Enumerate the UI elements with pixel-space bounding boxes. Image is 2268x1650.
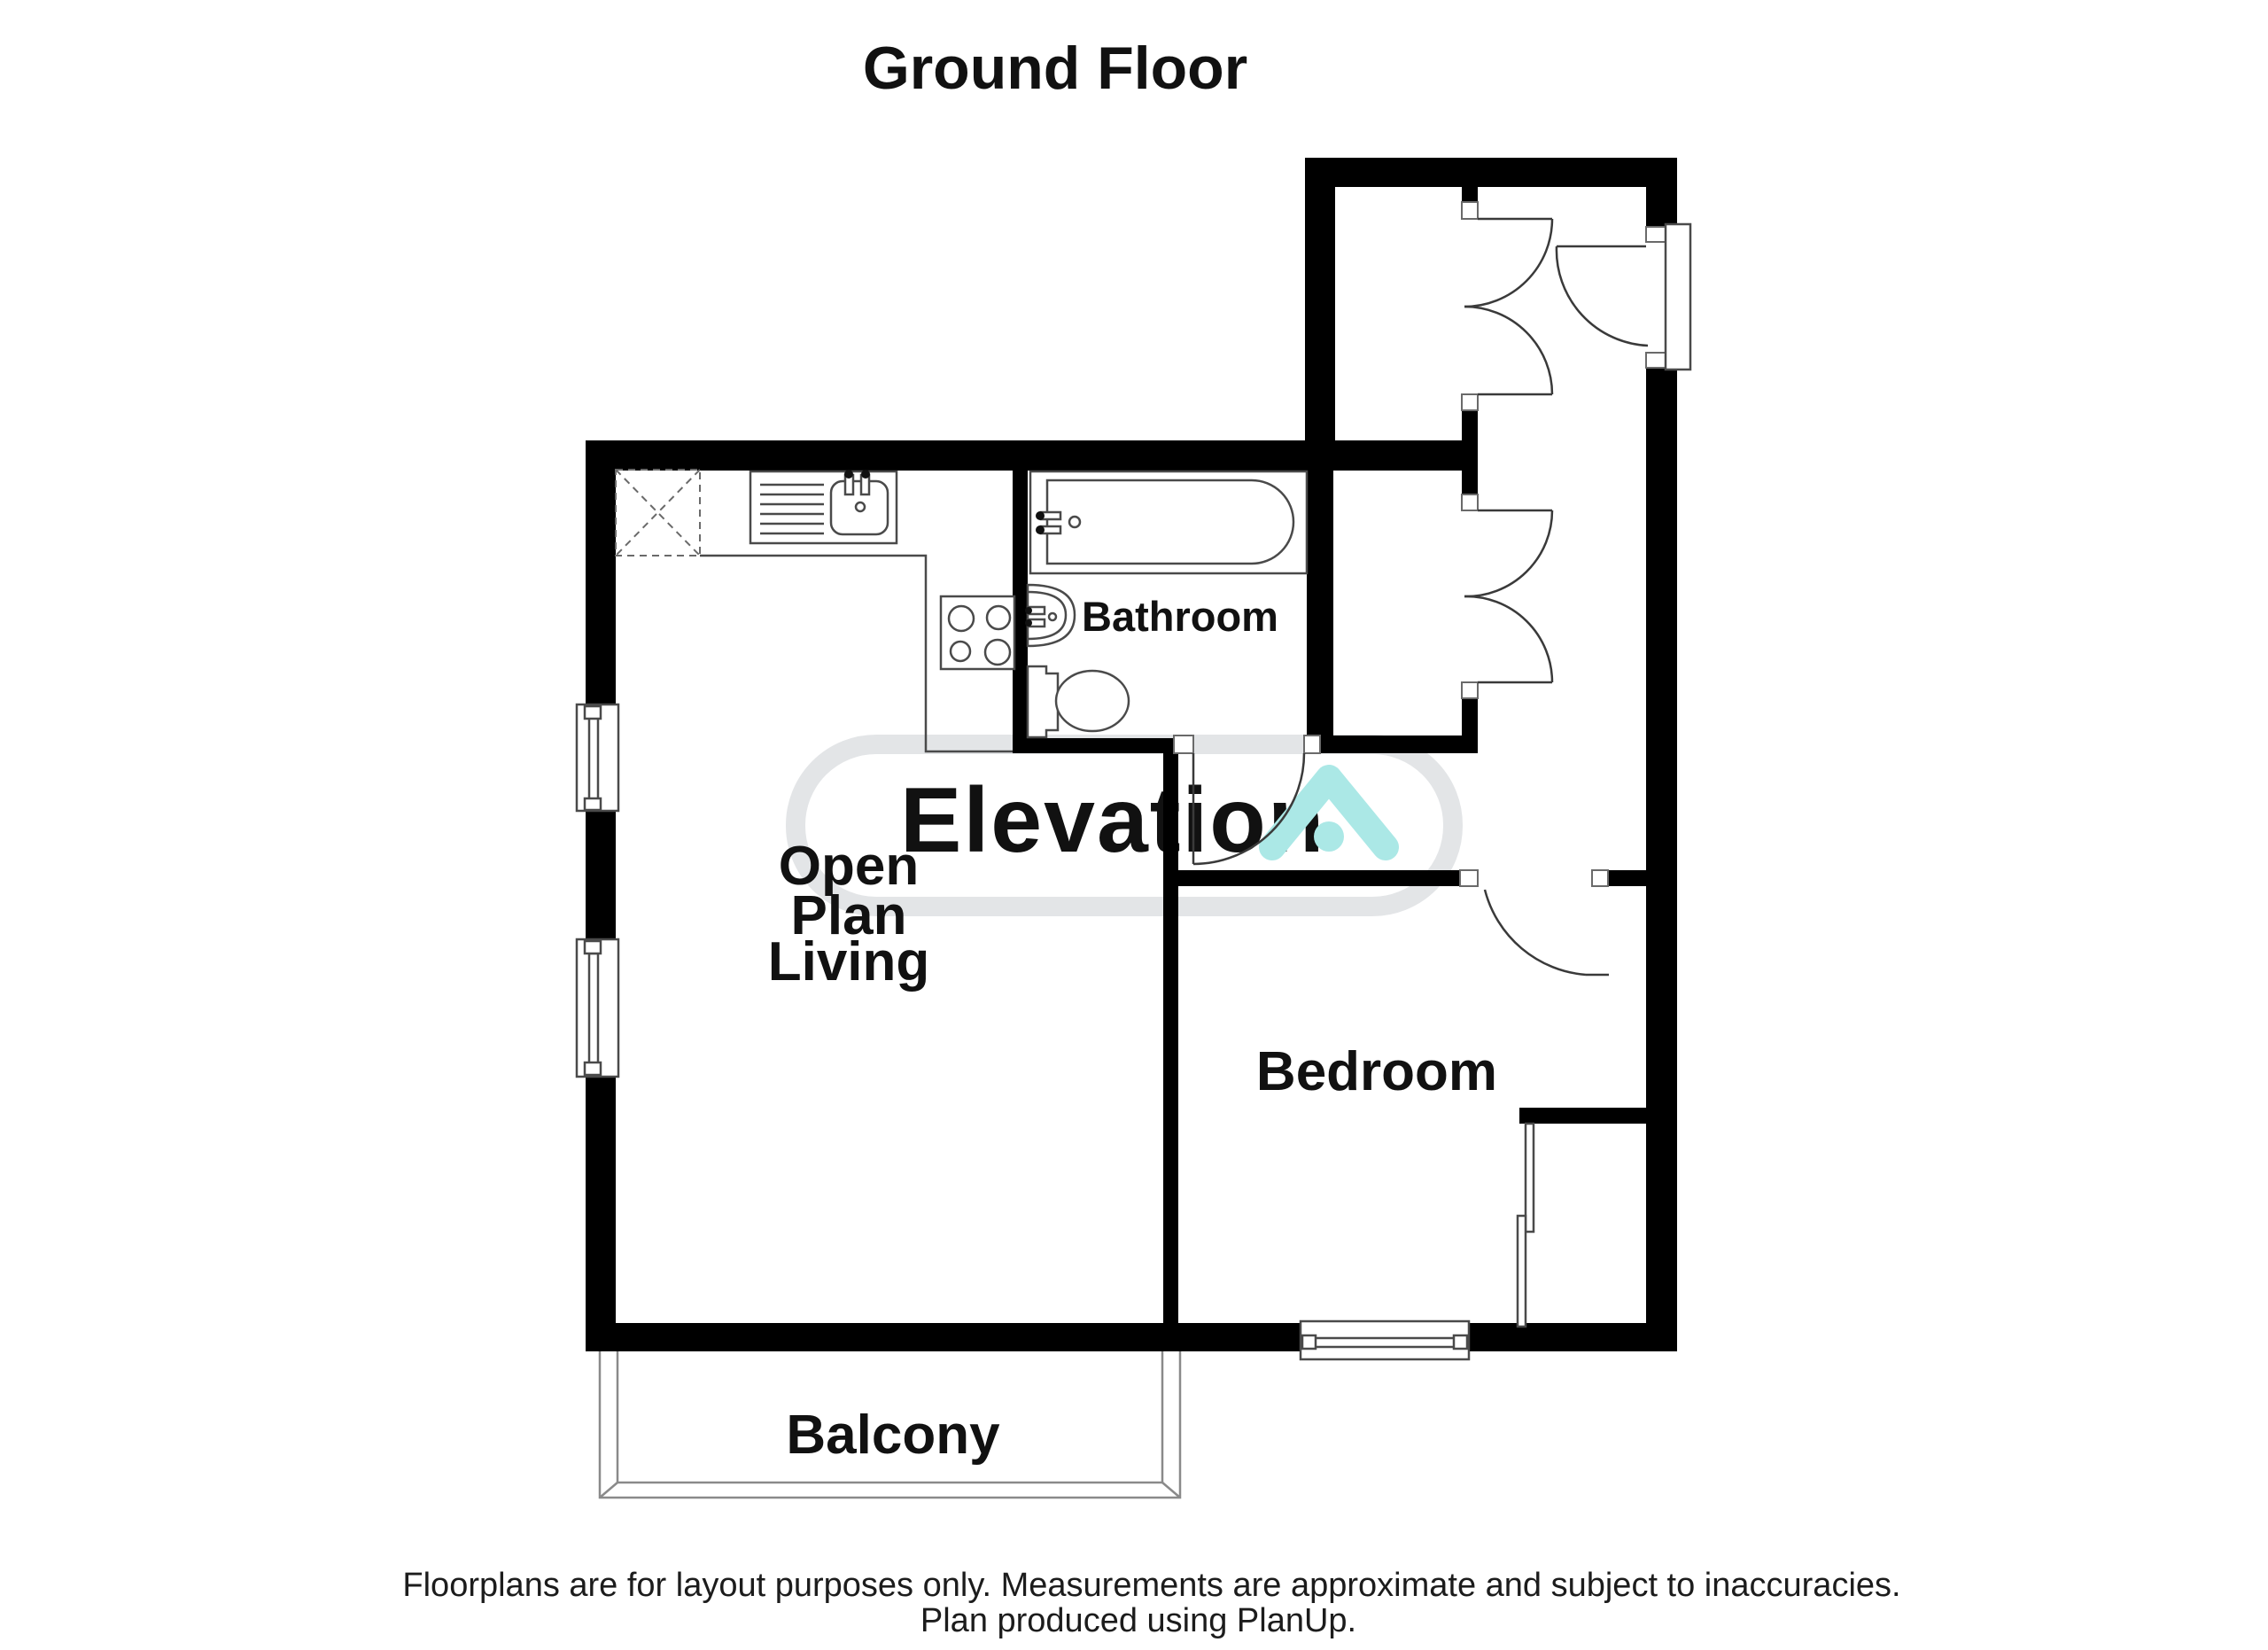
window-bedroom	[1301, 1321, 1469, 1359]
wall-closet-south	[1307, 735, 1478, 753]
wall-living-bedroom-divider	[1163, 753, 1178, 1323]
bathtub-icon	[1030, 471, 1307, 573]
wardrobe-sliding-doors	[1518, 1124, 1534, 1327]
wall-block-left	[1305, 187, 1335, 440]
footer: Floorplans are for layout purposes only.…	[402, 1567, 1900, 1639]
jamb	[1462, 202, 1478, 219]
wall-bottom-left	[586, 1323, 1301, 1351]
jamb	[1460, 870, 1478, 886]
floorplan-page: Ground Floor Elevation	[0, 0, 2268, 1650]
wall-right-main	[1646, 368, 1677, 1351]
label-bedroom: Bedroom	[1256, 1041, 1497, 1102]
wall-left-mid	[586, 811, 616, 939]
jamb	[1462, 494, 1478, 510]
bedroom-door	[1485, 890, 1609, 975]
wall-left-lower	[586, 1077, 616, 1351]
wall-bottom-right	[1469, 1323, 1677, 1351]
wall-block-top	[1305, 158, 1677, 187]
wall-closet-stub-top	[1462, 187, 1478, 202]
entrance-door	[1557, 224, 1690, 370]
footer-credit: Plan produced using PlanUp.	[920, 1602, 1356, 1639]
wall-bathroom-south	[1013, 738, 1174, 753]
wall-right-upper	[1646, 187, 1677, 227]
watermark-label: Elevation	[900, 769, 1325, 872]
footer-disclaimer: Floorplans are for layout purposes only.…	[402, 1567, 1900, 1604]
wall-bedroom-north-right	[1606, 870, 1646, 886]
label-bathroom: Bathroom	[1082, 593, 1278, 640]
jamb	[1174, 735, 1193, 753]
entrance-door-recess	[1666, 224, 1690, 370]
wall-top-main	[586, 440, 1478, 471]
label-open-plan-line3: Living	[768, 931, 930, 992]
wall-bedroom-north-left	[1178, 870, 1460, 886]
wall-bathroom-east	[1307, 471, 1333, 735]
cupboard-double-door-north	[1464, 219, 1552, 394]
kitchen-sink-icon	[750, 470, 897, 543]
kitchen-fixtures	[616, 470, 1014, 751]
window-living-upper	[577, 704, 618, 811]
wall-wardrobe-top	[1519, 1108, 1648, 1124]
jamb	[1592, 870, 1608, 886]
floorplan-canvas: Ground Floor Elevation	[0, 0, 2268, 1650]
jamb	[1462, 682, 1478, 698]
outer-walls	[586, 158, 1677, 1351]
label-balcony: Balcony	[786, 1405, 1000, 1466]
wall-closet-stub-mid	[1462, 410, 1478, 494]
window-living-lower	[577, 939, 618, 1077]
wall-left-upper	[586, 440, 616, 704]
jamb	[1304, 735, 1320, 753]
page-title: Ground Floor	[863, 35, 1247, 102]
wash-basin-icon	[1025, 585, 1075, 646]
kitchen-void-box	[616, 470, 700, 556]
hob-icon	[941, 596, 1014, 669]
cupboard-double-door-south	[1464, 510, 1552, 682]
toilet-icon	[1028, 666, 1129, 737]
jamb	[1462, 394, 1478, 410]
